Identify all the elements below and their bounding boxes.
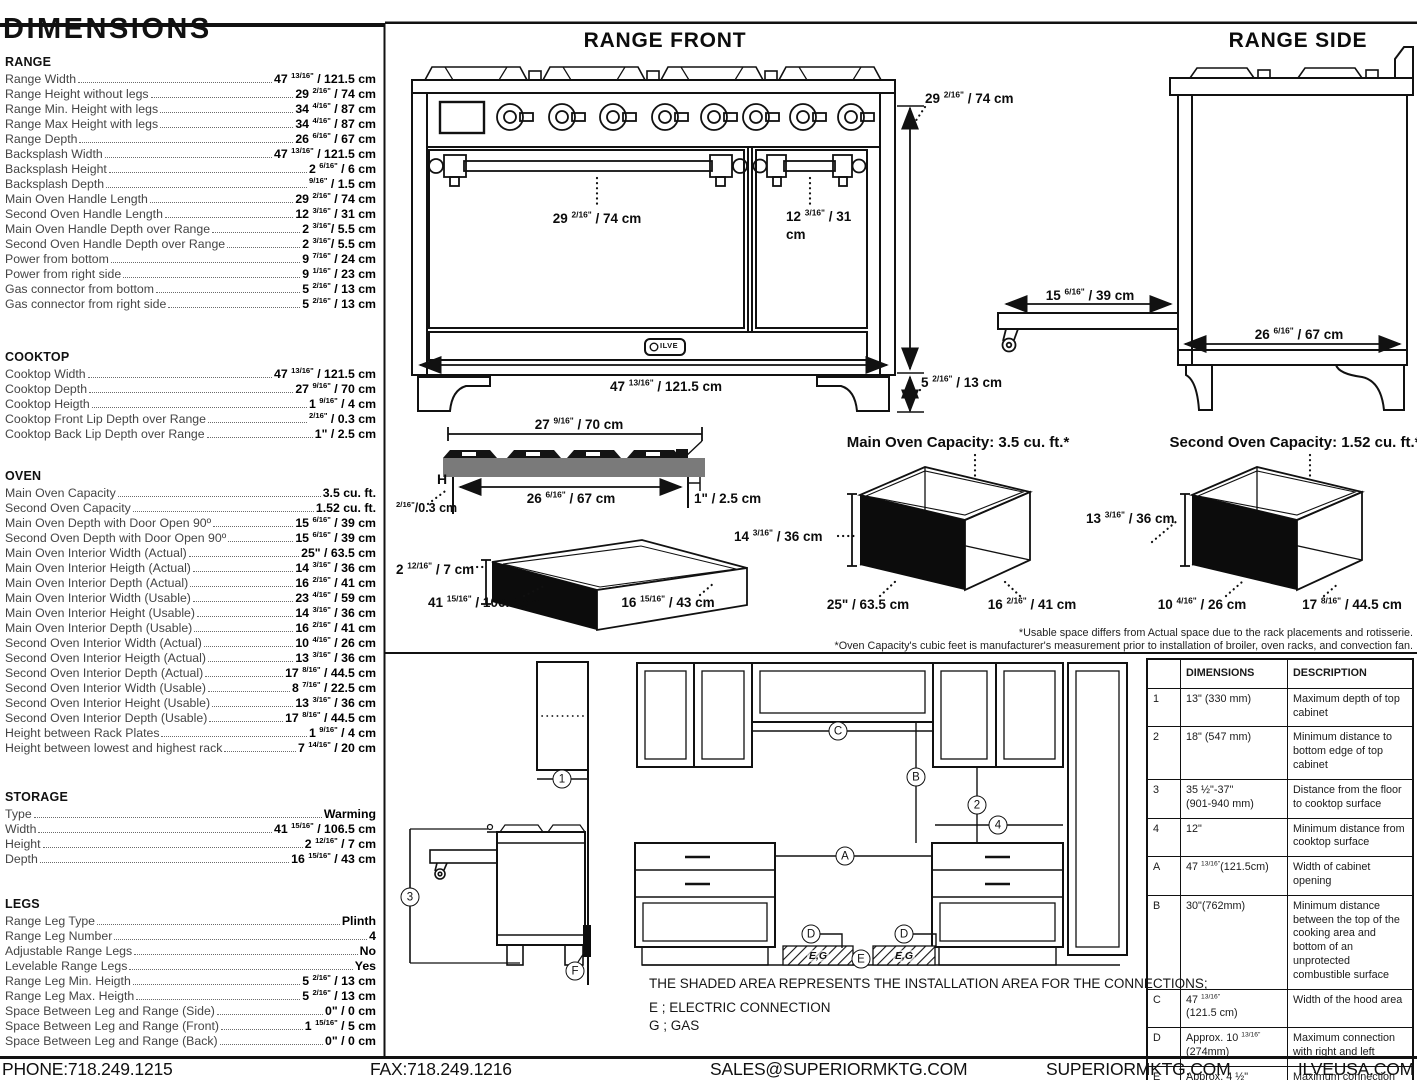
dotted-leader [34,817,322,818]
spec-value: 27 9/16" / 70 cm [295,382,376,396]
table-row: C47 13/16"(121.5 cm)Width of the hood ar… [1147,989,1413,1028]
table-cell-key: B [1147,895,1181,989]
table-cell-key: C [1147,989,1181,1028]
spec-label: Range Leg Type [5,914,95,928]
table-cell-description: Minimum distance between the top of the … [1288,895,1414,989]
dotted-leader [224,751,296,752]
spec-row: Main Oven Interior Height (Usable)14 3/1… [5,605,376,620]
table-cell-dimension: 30"(762mm) [1181,895,1288,989]
dotted-leader [208,691,290,692]
spec-value: 17 8/16" / 44.5 cm [285,711,376,725]
spec-row: Height between lowest and highest rack7 … [5,740,376,755]
spec-label: Range Leg Max. Heigth [5,989,134,1003]
second-oven-capacity-drawing [1152,455,1362,596]
storage-depth-label: 16 15/16" / 43 cm [621,594,714,612]
spec-value: Yes [355,959,376,973]
table-row: 335 ½"-37"(901-940 mm)Distance from the … [1147,779,1413,818]
table-cell-dimension: 47 13/16"(121.5cm) [1181,857,1288,896]
spec-value: 8 7/16" / 22.5 cm [292,681,376,695]
dotted-leader [205,676,283,677]
table-cell-description: Width of the hood area [1288,989,1414,1028]
spec-label: Second Oven Depth with Door Open 90º [5,531,226,545]
spec-label: Main Oven Interior Width (Actual) [5,546,187,560]
spec-row: Space Between Leg and Range (Side)0" / 0… [5,1003,376,1018]
table-row: 218" (547 mm)Minimum distance to bottom … [1147,727,1413,779]
ilve-logo: ILVE [660,341,678,350]
dimensions-table: DIMENSIONS DESCRIPTION 113" (330 mm)Maxi… [1146,658,1414,1080]
footnote-capacity: *Oven Capacity's cubic feet is manufactu… [835,640,1413,652]
front-width-label: 47 13/16" / 121.5 cm [610,378,722,396]
spec-value: No [360,944,376,958]
spec-label: Cooktop Width [5,367,86,381]
table-cell-description: Distance from the floor to cooktop surfa… [1288,779,1414,818]
cooktop-back-lip-label: 1" / 2.5 cm [694,490,761,508]
dotted-leader [228,541,293,542]
spec-value: 2 12/16" / 7 cm [305,837,376,851]
spec-value: 47 13/16" / 121.5 cm [274,72,376,86]
spec-label: Main Oven Depth with Door Open 90º [5,516,211,530]
spec-value: 1 9/16" / 4 cm [309,397,376,411]
spec-value: 9 7/16" / 24 cm [302,252,376,266]
spec-value: 4 [369,929,376,943]
spec-section-heading: LEGS [5,897,376,913]
spec-value: 5 2/16" / 13 cm [302,974,376,988]
dotted-leader [92,407,307,408]
table-row: B30"(762mm)Minimum distance between the … [1147,895,1413,989]
spec-row: Backsplash Height2 6/16" / 6 cm [5,161,376,176]
spec-value: 17 8/16" / 44.5 cm [285,666,376,680]
side-door-open-label: 15 6/16" / 39 cm [1046,287,1135,305]
spec-row: Main Oven Interior Depth (Actual)16 2/16… [5,575,376,590]
marker-1: 1 [553,770,572,789]
spec-row: Cooktop Front Lip Depth over Range2/16" … [5,411,376,426]
dotted-leader [40,862,289,863]
spec-label: Second Oven Interior Heigth (Actual) [5,651,206,665]
spec-label: Second Oven Interior Width (Actual) [5,636,202,650]
footer-fax: FAX:718.249.1216 [370,1059,512,1080]
main-oven-capacity-drawing [838,455,1030,596]
spec-row: Range Depth26 6/16" / 67 cm [5,131,376,146]
spec-label: Range Width [5,72,76,86]
spec-label: Main Oven Interior Depth (Actual) [5,576,188,590]
side-depth-label: 26 6/16" / 67 cm [1255,326,1344,344]
second-oven-title: Second Oven Capacity: 1.52 cu. ft.* [1170,433,1417,453]
spec-label: Range Leg Number [5,929,112,943]
dotted-leader [197,616,293,617]
spec-value: 1" / 2.5 cm [315,427,376,441]
cooktop-front-lip-label: 2/16"/0.3 cm [396,500,457,516]
spec-value: 10 4/16" / 26 cm [295,636,376,650]
spec-row: Cooktop Width47 13/16" / 121.5 cm [5,366,376,381]
spec-label: Space Between Leg and Range (Side) [5,1004,215,1018]
dotted-leader [165,217,293,218]
dotted-leader [134,954,357,955]
spec-value: 29 2/16" / 74 cm [295,87,376,101]
dotted-leader [156,292,300,293]
spec-section-range: RANGERange Width47 13/16" / 121.5 cmRang… [5,55,376,311]
spec-row: Cooktop Heigth1 9/16" / 4 cm [5,396,376,411]
legend-gas: G ; GAS [649,1018,699,1033]
dotted-leader [208,661,293,662]
dotted-leader [105,157,272,158]
second-oven-handle [754,155,866,186]
installation-side-drawing [410,662,591,985]
cooktop-height-mark: H [437,470,447,488]
spec-value: 1.52 cu. ft. [316,501,376,515]
spec-value: 47 13/16" / 121.5 cm [274,367,376,381]
range-side-drawing [998,47,1413,410]
spec-row: Range Height without legs29 2/16" / 74 c… [5,86,376,101]
marker-D-right: D [895,925,914,944]
spec-value: 23 4/16" / 59 cm [295,591,376,605]
spec-value: 7 14/16" / 20 cm [298,741,376,755]
spec-value: 3.5 cu. ft. [323,486,376,500]
spec-label: Adjustable Range Legs [5,944,132,958]
spec-label: Space Between Leg and Range (Front) [5,1019,219,1033]
spec-row: Cooktop Back Lip Depth over Range1" / 2.… [5,426,376,441]
dotted-leader [193,601,293,602]
spec-section-heading: OVEN [5,469,376,485]
table-cell-description: Width of cabinet opening [1288,857,1414,896]
spec-row: Second Oven Interior Width (Usable)8 7/1… [5,680,376,695]
spec-value: 0" / 0 cm [325,1034,376,1048]
spec-value: 15 6/16" / 39 cm [295,531,376,545]
table-row: A47 13/16"(121.5cm)Width of cabinet open… [1147,857,1413,896]
dotted-leader [168,307,300,308]
storage-height-label: 2 12/16" / 7 cm [396,561,474,579]
spec-label: Backsplash Width [5,147,103,161]
dotted-leader [194,631,293,632]
spec-row: Range Max Height with legs34 4/16" / 87 … [5,116,376,131]
side-view-title: RANGE SIDE [1229,27,1368,54]
spec-row: Range Width47 13/16" / 121.5 cm [5,71,376,86]
marker-D-left: D [802,925,821,944]
dotted-leader [227,247,300,248]
spec-row: Main Oven Interior Width (Usable)23 4/16… [5,590,376,605]
table-cell-description: Minimum distance from cooktop surface [1288,818,1414,857]
dotted-leader [136,999,300,1000]
spec-label: Second Oven Interior Width (Usable) [5,681,206,695]
spec-row: Height2 12/16" / 7 cm [5,836,376,851]
spec-value: 29 2/16" / 74 cm [295,192,376,206]
spec-value: Plinth [342,914,376,928]
spec-label: Second Oven Interior Depth (Actual) [5,666,203,680]
dotted-leader [111,262,300,263]
dotted-leader [133,511,314,512]
spec-value: Warming [324,807,376,821]
spec-label: Range Leg Min. Heigth [5,974,131,988]
dotted-leader [38,832,272,833]
spec-label: Main Oven Interior Depth (Usable) [5,621,192,635]
spec-label: Main Oven Handle Length [5,192,148,206]
footnote-usable-space: *Usable space differs from Actual space … [1019,627,1413,639]
spec-section-heading: STORAGE [5,790,376,806]
dotted-leader [189,556,299,557]
spec-row: Width41 15/16" / 106.5 cm [5,821,376,836]
spec-row: TypeWarming [5,806,376,821]
dotted-leader [190,586,293,587]
legend-electric: E ; ELECTRIC CONNECTION [649,1000,831,1015]
dotted-leader [129,969,352,970]
spec-value: 0" / 0 cm [325,1004,376,1018]
spec-row: Second Oven Interior Heigth (Actual)13 3… [5,650,376,665]
spec-value: 2 3/16"/ 5.5 cm [302,237,376,251]
table-cell-key: 4 [1147,818,1181,857]
dotted-leader [193,571,293,572]
spec-value: 1 15/16" / 5 cm [305,1019,376,1033]
spec-row: Main Oven Handle Length29 2/16" / 74 cm [5,191,376,206]
marker-B: B [907,768,926,787]
dotted-leader [114,939,367,940]
spec-row: Range Leg Min. Heigth5 2/16" / 13 cm [5,973,376,988]
front-leg-height-label: 5 2/16" / 13 cm [921,374,1002,392]
front-main-handle-label: 29 2/16" / 74 cm [553,210,642,228]
dotted-leader [207,437,313,438]
spec-label: Range Max Height with legs [5,117,158,131]
control-knobs [497,104,874,130]
table-header-row: DIMENSIONS DESCRIPTION [1147,659,1413,688]
spec-value: 14 3/16" / 36 cm [295,606,376,620]
spec-row: Second Oven Interior Height (Usable)13 3… [5,695,376,710]
legend-shaded-area: THE SHADED AREA REPRESENTS THE INSTALLAT… [649,976,1208,991]
connection-area-label-left: E,G [807,950,829,962]
spec-value: 2 6/16" / 6 cm [309,162,376,176]
footer-email: SALES@SUPERIORMKTG.COM [710,1059,967,1080]
spec-row: Main Oven Interior Heigth (Actual)14 3/1… [5,560,376,575]
spec-row: Main Oven Interior Depth (Usable)16 2/16… [5,620,376,635]
dotted-leader [160,127,293,128]
spec-row: Power from bottom9 7/16" / 24 cm [5,251,376,266]
table-cell-key: 2 [1147,727,1181,779]
dotted-leader [161,736,307,737]
spec-label: Second Oven Handle Length [5,207,163,221]
spec-value: 9 1/16" / 23 cm [302,267,376,281]
spec-label: Height [5,837,41,851]
spec-row: Main Oven Interior Width (Actual)25" / 6… [5,545,376,560]
spec-label: Gas connector from right side [5,297,166,311]
spec-label: Cooktop Back Lip Depth over Range [5,427,205,441]
spec-row: Levelable Range LegsYes [5,958,376,973]
dotted-leader [97,924,340,925]
table-cell-dimension: 13" (330 mm) [1181,688,1288,727]
spec-label: Cooktop Front Lip Depth over Range [5,412,206,426]
dotted-leader [220,1044,323,1045]
footer-website: SUPERIORMKTG.COM [1046,1059,1230,1080]
spec-label: Main Oven Interior Width (Usable) [5,591,191,605]
spec-row: Height between Rack Plates1 9/16" / 4 cm [5,725,376,740]
dotted-leader [212,706,293,707]
connection-area-label-right: E,G [893,950,915,962]
table-cell-dimension: 12" [1181,818,1288,857]
spec-label: Cooktop Depth [5,382,87,396]
dimensions-sheet: DIMENSIONS RANGERange Width47 13/16" / 1… [0,0,1417,1080]
spec-label: Space Between Leg and Range (Back) [5,1034,218,1048]
spec-value: 16 2/16" / 41 cm [295,576,376,590]
spec-value: 2/16" / 0.3 cm [309,412,376,426]
spec-label: Range Min. Height with legs [5,102,158,116]
marker-E: E [852,950,871,969]
dotted-leader [209,721,283,722]
spec-row: Gas connector from right side5 2/16" / 1… [5,296,376,311]
spec-row: Main Oven Depth with Door Open 90º15 6/1… [5,515,376,530]
spec-row: Range Min. Height with legs34 4/16" / 87… [5,101,376,116]
dotted-leader [78,82,272,83]
spec-label: Second Oven Interior Depth (Usable) [5,711,207,725]
spec-label: Backsplash Height [5,162,107,176]
spec-row: Second Oven Interior Width (Actual)10 4/… [5,635,376,650]
marker-C: C [829,722,848,741]
main-oven-height-label: 14 3/16" / 36 cm [734,528,823,546]
dimensions-table-body: 113" (330 mm)Maximum depth of top cabine… [1147,688,1413,1080]
second-oven-depth-label: 17 8/16" / 44.5 cm [1302,596,1402,614]
spec-value: 5 2/16" / 13 cm [302,989,376,1003]
spec-label: Power from right side [5,267,121,281]
dotted-leader [89,392,293,393]
spec-row: Space Between Leg and Range (Back)0" / 0… [5,1033,376,1048]
second-oven-height-label: 13 3/16" / 36 cm [1086,510,1175,528]
dotted-leader [88,377,272,378]
spec-row: Space Between Leg and Range (Front)1 15/… [5,1018,376,1033]
dotted-leader [43,847,303,848]
spec-value: 14 3/16" / 36 cm [295,561,376,575]
cooktop-top-width-label: 27 9/16" / 70 cm [535,416,624,434]
spec-row: Range Leg Max. Heigth5 2/16" / 13 cm [5,988,376,1003]
main-oven-width-label: 25" / 63.5 cm [827,596,909,614]
spec-row: Backsplash Depth9/16" / 1.5 cm [5,176,376,191]
spec-value: 5 2/16" / 13 cm [302,282,376,296]
spec-row: Second Oven Handle Length12 3/16" / 31 c… [5,206,376,221]
dotted-leader [160,112,293,113]
spec-label: Backsplash Depth [5,177,104,191]
spec-value: 2 3/16"/ 5.5 cm [302,222,376,236]
spec-row: Backsplash Width47 13/16" / 121.5 cm [5,146,376,161]
spec-row: Main Oven Handle Depth over Range2 3/16"… [5,221,376,236]
spec-list: RANGERange Width47 13/16" / 121.5 cmRang… [0,25,383,1055]
marker-3: 3 [401,888,420,907]
second-oven-width-label: 10 4/16" / 26 cm [1158,596,1247,614]
cooktop-bottom-width-label: 26 6/16" / 67 cm [527,490,616,508]
spec-label: Power from bottom [5,252,109,266]
spec-label: Main Oven Handle Depth over Range [5,222,210,236]
dotted-leader [221,1029,303,1030]
dotted-leader [204,646,294,647]
spec-label: Range Height without legs [5,87,149,101]
spec-value: 5 2/16" / 13 cm [302,297,376,311]
installation-front-drawing [635,663,1127,965]
dotted-leader [133,984,300,985]
spec-value: 16 2/16" / 41 cm [295,621,376,635]
front-view-title: RANGE FRONT [584,27,747,54]
spec-row: Second Oven Capacity1.52 cu. ft. [5,500,376,515]
spec-label: Height between lowest and highest rack [5,741,222,755]
spec-row: Power from right side9 1/16" / 23 cm [5,266,376,281]
table-cell-key: 3 [1147,779,1181,818]
table-row: 412"Minimum distance from cooktop surfac… [1147,818,1413,857]
storage-width-label: 41 15/16" / 106.5 cm [428,594,540,612]
spec-label: Second Oven Interior Height (Usable) [5,696,210,710]
spec-row: Range Leg Number4 [5,928,376,943]
footer-phone: PHONE:718.249.1215 [2,1059,173,1080]
table-cell-description: Minimum distance to bottom edge of top c… [1288,727,1414,779]
dotted-leader [151,97,294,98]
spec-value: 41 15/16" / 106.5 cm [274,822,376,836]
dotted-leader [109,172,307,173]
spec-label: Main Oven Interior Height (Usable) [5,606,195,620]
table-cell-key: A [1147,857,1181,896]
marker-F: F [566,962,585,981]
spec-section-storage: STORAGETypeWarmingWidth41 15/16" / 106.5… [5,790,376,866]
dotted-leader [217,1014,323,1015]
main-oven-depth-label: 16 2/16" / 41 cm [988,596,1077,614]
spec-label: Depth [5,852,38,866]
spec-row: Second Oven Interior Depth (Usable)17 8/… [5,710,376,725]
spec-row: Range Leg TypePlinth [5,913,376,928]
spec-section-cooktop: COOKTOPCooktop Width47 13/16" / 121.5 cm… [5,350,376,441]
main-oven-handle [429,155,747,186]
spec-value: 34 4/16" / 87 cm [295,117,376,131]
spec-value: 13 3/16" / 36 cm [295,651,376,665]
spec-row: Gas connector from bottom5 2/16" / 13 cm [5,281,376,296]
spec-label: Type [5,807,32,821]
table-row: 113" (330 mm)Maximum depth of top cabine… [1147,688,1413,727]
spec-section-heading: RANGE [5,55,376,71]
marker-2: 2 [968,796,987,815]
dotted-leader [212,232,300,233]
dotted-leader [150,202,293,203]
spec-value: 13 3/16" / 36 cm [295,696,376,710]
spec-section-legs: LEGSRange Leg TypePlinthRange Leg Number… [5,897,376,1048]
spec-label: Second Oven Handle Depth over Range [5,237,225,251]
spec-value: 25" / 63.5 cm [301,546,376,560]
front-height-label: 29 2/16" / 74 cm [925,90,1014,108]
spec-label: Cooktop Heigth [5,397,90,411]
dotted-leader [123,277,300,278]
dotted-leader [208,422,307,423]
spec-section-heading: COOKTOP [5,350,376,366]
dotted-leader [79,142,293,143]
spec-row: Adjustable Range LegsNo [5,943,376,958]
table-cell-key: 1 [1147,688,1181,727]
spec-row: Cooktop Depth27 9/16" / 70 cm [5,381,376,396]
spec-label: Gas connector from bottom [5,282,154,296]
marker-4: 4 [989,816,1008,835]
dotted-leader [106,187,307,188]
spec-label: Range Depth [5,132,77,146]
spec-value: 12 3/16" / 31 cm [295,207,376,221]
front-second-handle-label: 12 3/16" / 31 cm [786,208,866,243]
main-oven-title: Main Oven Capacity: 3.5 cu. ft.* [847,433,1070,453]
table-cell-dimension: 18" (547 mm) [1181,727,1288,779]
spec-label: Second Oven Capacity [5,501,131,515]
spec-row: Second Oven Handle Depth over Range2 3/1… [5,236,376,251]
spec-value: 47 13/16" / 121.5 cm [274,147,376,161]
spec-value: 26 6/16" / 67 cm [295,132,376,146]
table-header-description: DESCRIPTION [1288,659,1414,688]
spec-label: Main Oven Interior Heigth (Actual) [5,561,191,575]
spec-label: Levelable Range Legs [5,959,127,973]
storage-drawer-drawing [472,540,747,630]
marker-A: A [836,847,855,866]
dotted-leader [118,496,321,497]
spec-row: Second Oven Depth with Door Open 90º15 6… [5,530,376,545]
spec-section-oven: OVENMain Oven Capacity3.5 cu. ft.Second … [5,469,376,755]
table-cell-dimension: 47 13/16"(121.5 cm) [1181,989,1288,1028]
table-cell-dimension: 35 ½"-37"(901-940 mm) [1181,779,1288,818]
dotted-leader [213,526,293,527]
spec-row: Main Oven Capacity3.5 cu. ft. [5,485,376,500]
table-header-dimensions: DIMENSIONS [1181,659,1288,688]
footer-brand-site: ILVEUSA.COM [1298,1059,1414,1080]
